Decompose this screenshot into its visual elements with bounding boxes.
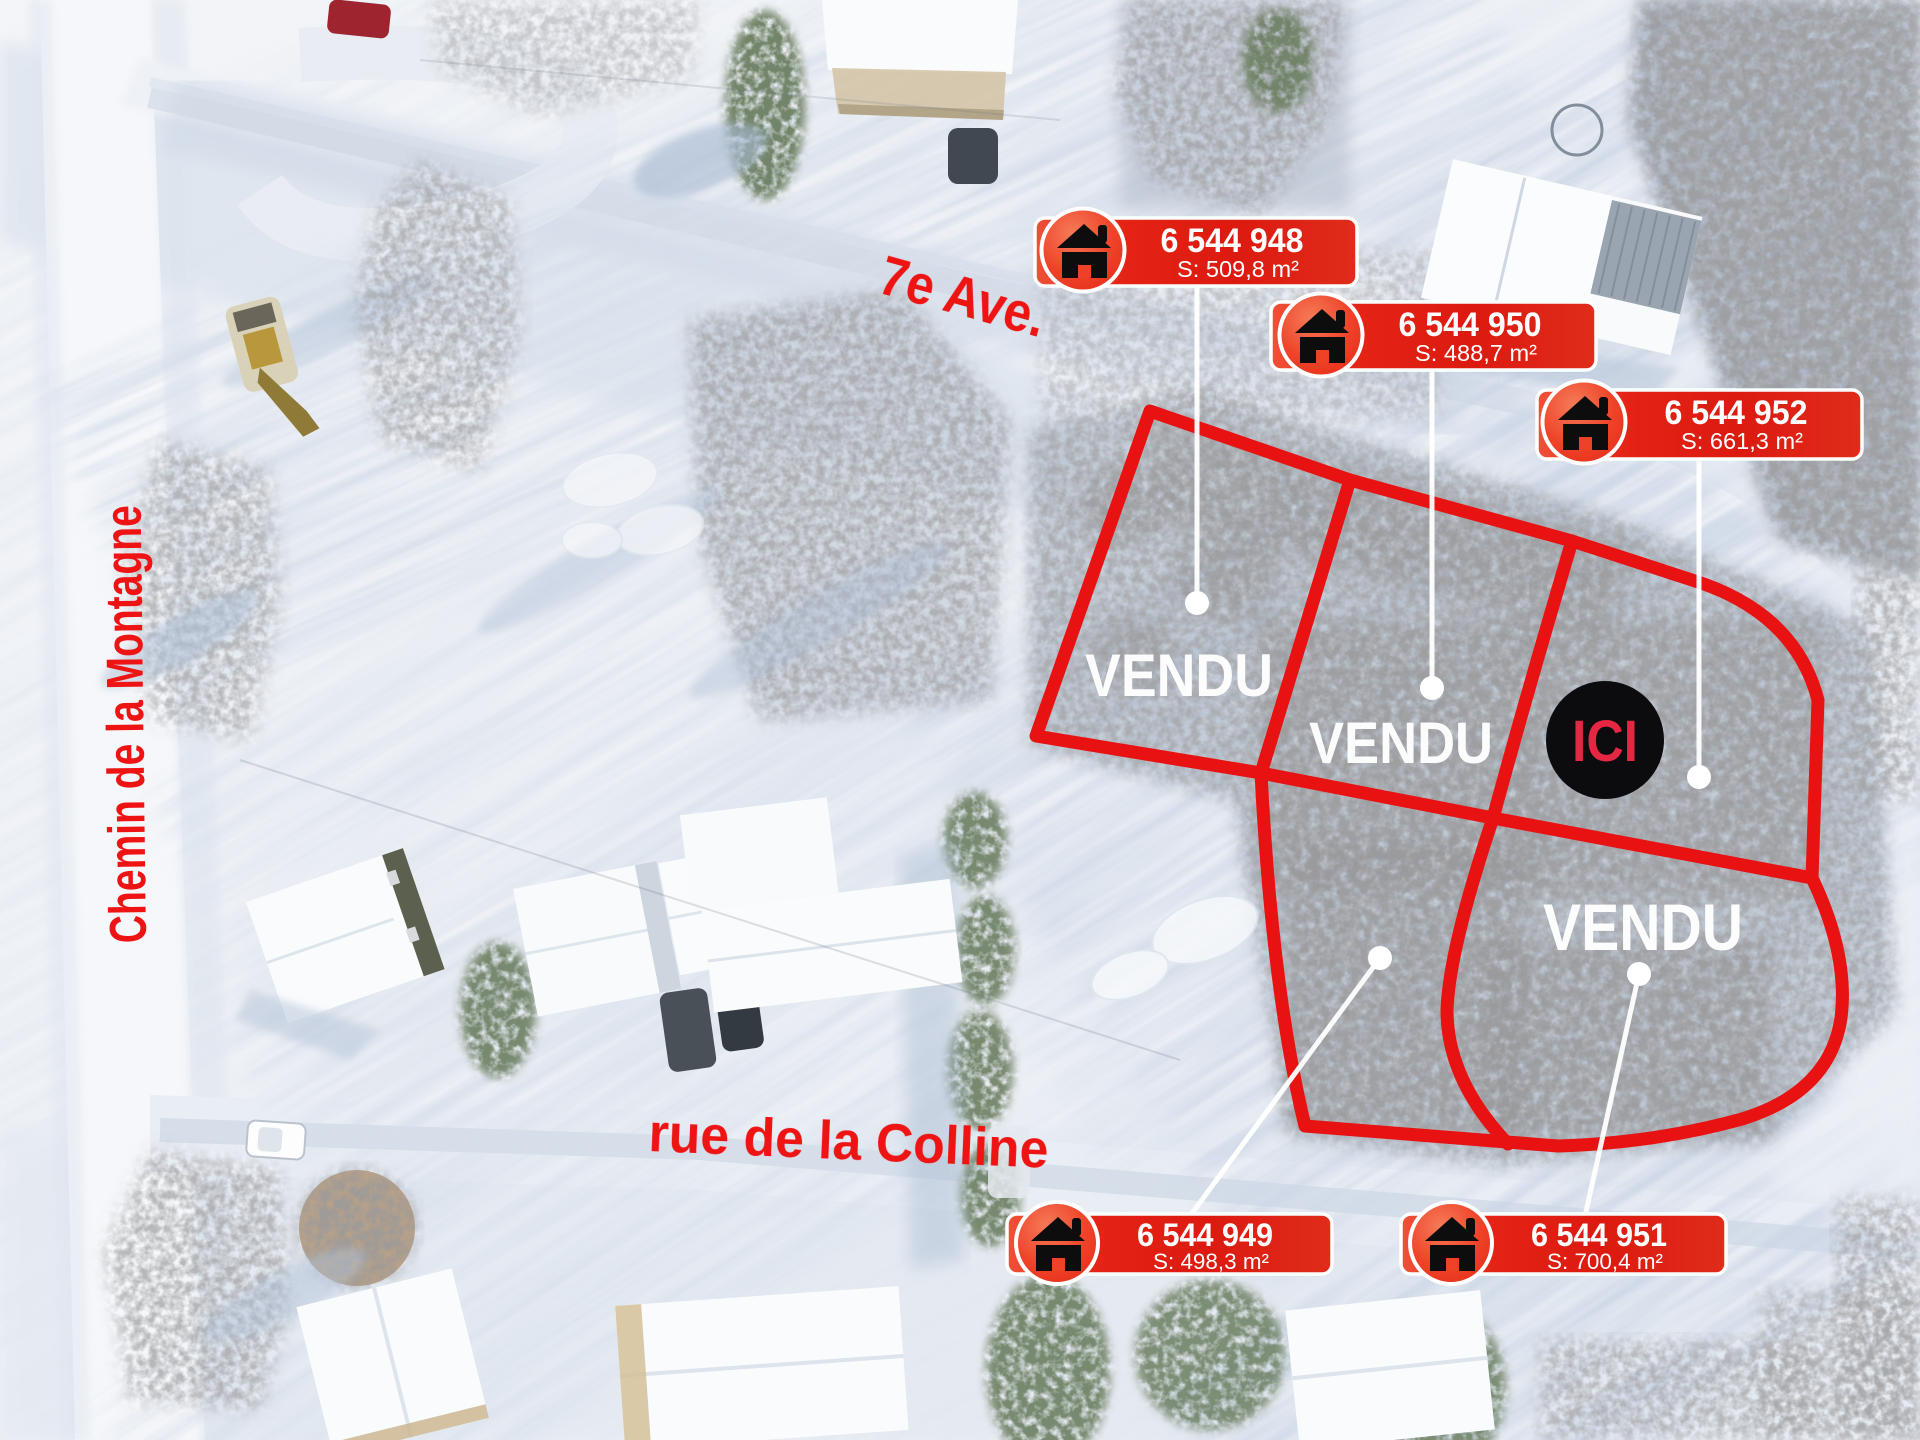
- svg-text:S: 661,3 m²: S: 661,3 m²: [1681, 428, 1803, 454]
- svg-text:S: 700,4 m²: S: 700,4 m²: [1547, 1249, 1663, 1274]
- svg-text:6 544 948: 6 544 948: [1161, 222, 1304, 260]
- svg-text:Chemin de la Montagne: Chemin de la Montagne: [95, 505, 158, 944]
- svg-text:ICI: ICI: [1572, 709, 1638, 774]
- svg-text:VENDU: VENDU: [1543, 890, 1743, 964]
- svg-text:6 544 949: 6 544 949: [1137, 1217, 1273, 1253]
- svg-text:6 544 950: 6 544 950: [1399, 306, 1542, 344]
- svg-text:VENDU: VENDU: [1309, 711, 1493, 776]
- svg-text:S: 498,3 m²: S: 498,3 m²: [1153, 1249, 1269, 1274]
- svg-text:S: 509,8 m²: S: 509,8 m²: [1177, 256, 1299, 282]
- svg-text:6 544 951: 6 544 951: [1531, 1217, 1667, 1253]
- svg-text:S: 488,7 m²: S: 488,7 m²: [1415, 340, 1537, 366]
- svg-text:VENDU: VENDU: [1085, 642, 1273, 709]
- svg-text:6 544 952: 6 544 952: [1665, 394, 1808, 432]
